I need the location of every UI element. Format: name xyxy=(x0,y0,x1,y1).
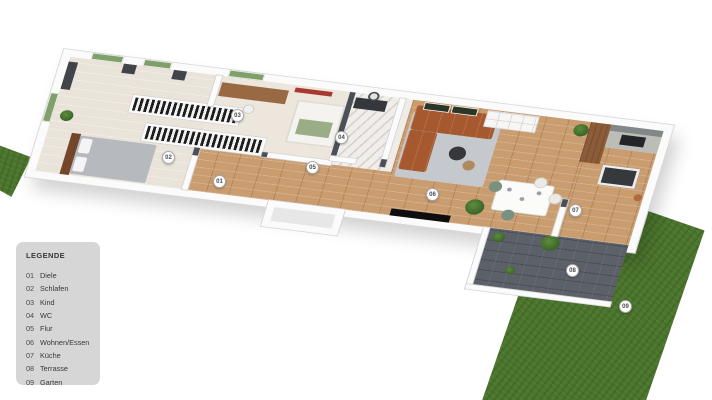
crib-blanket xyxy=(295,119,333,138)
legend-item-garten: 09 Garten xyxy=(26,375,100,388)
legend-label: Garten xyxy=(40,378,62,387)
marker-09-garten: 09 xyxy=(619,300,632,313)
legend-num: 05 xyxy=(26,324,40,333)
legend-label: Schlafen xyxy=(40,284,68,293)
legend-num: 03 xyxy=(26,298,40,307)
apartment-plan xyxy=(25,49,674,253)
legend-label: WC xyxy=(40,311,52,320)
legend-item-schlafen: 02 Schlafen xyxy=(26,282,100,295)
legend-item-kueche: 07 Küche xyxy=(26,349,100,362)
marker-08-terrasse: 08 xyxy=(566,264,579,277)
table-setting-3 xyxy=(536,191,542,195)
legend-num: 09 xyxy=(26,378,40,387)
legend-item-wc: 04 WC xyxy=(26,309,100,322)
legend-label: Kind xyxy=(40,298,55,307)
marker-06-wohnen-essen: 06 xyxy=(426,188,439,201)
marker-04-wc: 04 xyxy=(335,131,348,144)
legend-item-flur: 05 Flur xyxy=(26,322,100,335)
legend-label: Wohnen/Essen xyxy=(40,338,89,347)
table-setting-2 xyxy=(519,197,525,201)
marker-07-kueche: 07 xyxy=(569,204,582,217)
marker-01-diele: 01 xyxy=(213,175,226,188)
curtain-back-1 xyxy=(121,64,137,75)
marker-03-kind: 03 xyxy=(231,109,244,122)
floorplan-render: 01 02 03 04 05 06 07 08 09 LEGENDE 01 Di… xyxy=(0,0,712,400)
legend-num: 02 xyxy=(26,284,40,293)
legend-label: Terrasse xyxy=(40,364,68,373)
door-jamb-2 xyxy=(379,159,387,167)
legend-item-wohnen-essen: 06 Wohnen/Essen xyxy=(26,335,100,348)
legend-label: Küche xyxy=(40,351,61,360)
legend-num: 01 xyxy=(26,271,40,280)
legend-label: Flur xyxy=(40,324,53,333)
legend-num: 04 xyxy=(26,311,40,320)
legend-item-kind: 03 Kind xyxy=(26,296,100,309)
legend-title: LEGENDE xyxy=(26,251,100,260)
legend-num: 07 xyxy=(26,351,40,360)
marker-02-schlafen: 02 xyxy=(162,151,175,164)
legend-panel: LEGENDE 01 Diele 02 Schlafen 03 Kind 04 … xyxy=(16,242,100,385)
legend-item-terrasse: 08 Terrasse xyxy=(26,362,100,375)
table-setting-1 xyxy=(507,187,513,191)
curtain-back-2 xyxy=(171,70,187,81)
legend-label: Diele xyxy=(40,271,57,280)
legend-item-diele: 01 Diele xyxy=(26,269,100,282)
legend-num: 08 xyxy=(26,364,40,373)
legend-num: 06 xyxy=(26,338,40,347)
marker-05-flur: 05 xyxy=(306,161,319,174)
